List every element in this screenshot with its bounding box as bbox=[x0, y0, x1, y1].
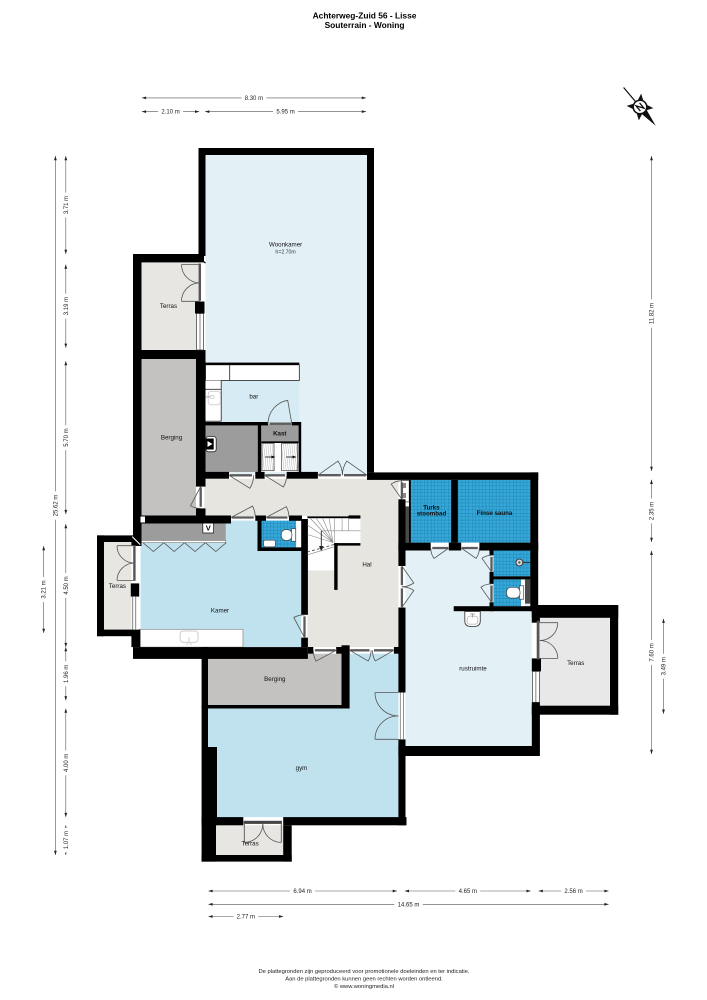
svg-text:Kamer: Kamer bbox=[211, 608, 229, 615]
svg-text:V: V bbox=[206, 524, 211, 533]
svg-text:4.00 m: 4.00 m bbox=[64, 754, 70, 772]
svg-text:3.21 m: 3.21 m bbox=[42, 580, 48, 598]
svg-text:14.65 m: 14.65 m bbox=[398, 902, 420, 908]
svg-text:3.49 m: 3.49 m bbox=[662, 657, 668, 675]
svg-text:2.77 m: 2.77 m bbox=[237, 915, 255, 921]
svg-text:4.65 m: 4.65 m bbox=[459, 889, 477, 895]
svg-text:Terras: Terras bbox=[567, 660, 584, 667]
svg-text:gym: gym bbox=[296, 765, 308, 772]
svg-text:rustruimte: rustruimte bbox=[459, 666, 487, 673]
svg-text:bar: bar bbox=[249, 394, 258, 401]
svg-text:Terras: Terras bbox=[241, 841, 258, 848]
svg-text:7.60 m: 7.60 m bbox=[650, 643, 656, 661]
svg-text:11.82 m: 11.82 m bbox=[650, 303, 656, 324]
svg-text:Finse sauna: Finse sauna bbox=[477, 510, 513, 517]
svg-text:1.07 m: 1.07 m bbox=[64, 831, 70, 849]
svg-text:h=2.70m: h=2.70m bbox=[275, 250, 295, 256]
svg-text:Souterrain - Woning: Souterrain - Woning bbox=[325, 20, 405, 30]
svg-text:25.62 m: 25.62 m bbox=[53, 495, 59, 517]
svg-text:stoombad: stoombad bbox=[417, 511, 447, 518]
svg-text:1.96 m: 1.96 m bbox=[64, 665, 70, 683]
svg-text:5.70 m: 5.70 m bbox=[64, 428, 70, 446]
svg-text:2.35 m: 2.35 m bbox=[650, 502, 656, 520]
svg-text:3.19 m: 3.19 m bbox=[64, 297, 70, 315]
svg-text:8.30 m: 8.30 m bbox=[245, 96, 263, 102]
svg-text:5.95 m: 5.95 m bbox=[276, 110, 294, 116]
svg-text:Terras: Terras bbox=[109, 583, 126, 590]
svg-text:2.10 m: 2.10 m bbox=[161, 110, 179, 116]
svg-text:Terras: Terras bbox=[160, 303, 177, 310]
svg-text:6.94 m: 6.94 m bbox=[293, 889, 311, 895]
svg-text:2.56 m: 2.56 m bbox=[564, 889, 582, 895]
svg-text:Hal: Hal bbox=[362, 562, 371, 569]
svg-text:3.71 m: 3.71 m bbox=[64, 196, 70, 214]
svg-text:Berging: Berging bbox=[161, 435, 183, 442]
svg-text:Woonkamer: Woonkamer bbox=[269, 242, 302, 249]
svg-text:Kast: Kast bbox=[273, 431, 286, 438]
svg-text:Aan de plattegronden kunnen ge: Aan de plattegronden kunnen geen rechten… bbox=[285, 977, 443, 983]
svg-text:4.50 m: 4.50 m bbox=[64, 576, 70, 594]
svg-text:Berging: Berging bbox=[264, 676, 286, 683]
svg-text:De plattegronden zijn geproduc: De plattegronden zijn geproduceerd voor … bbox=[258, 969, 469, 975]
svg-text:© www.woningmedia.nl: © www.woningmedia.nl bbox=[334, 983, 394, 990]
